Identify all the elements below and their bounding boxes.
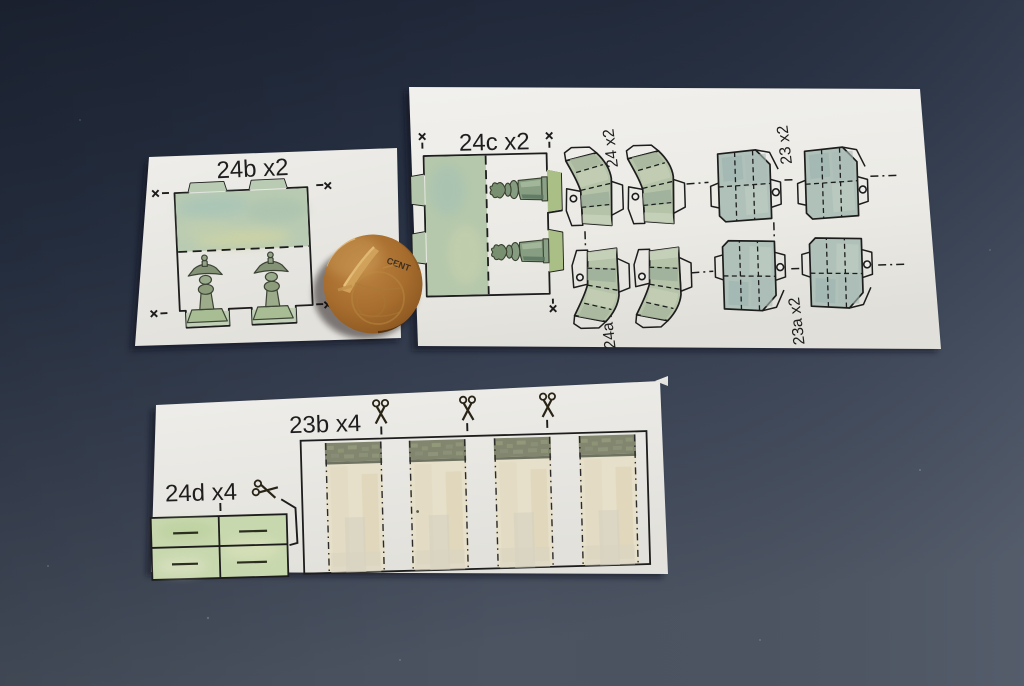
svg-text:24d x4: 24d x4: [165, 479, 238, 508]
svg-text:24c x2: 24c x2: [459, 128, 530, 157]
svg-text:23b x4: 23b x4: [289, 410, 362, 439]
